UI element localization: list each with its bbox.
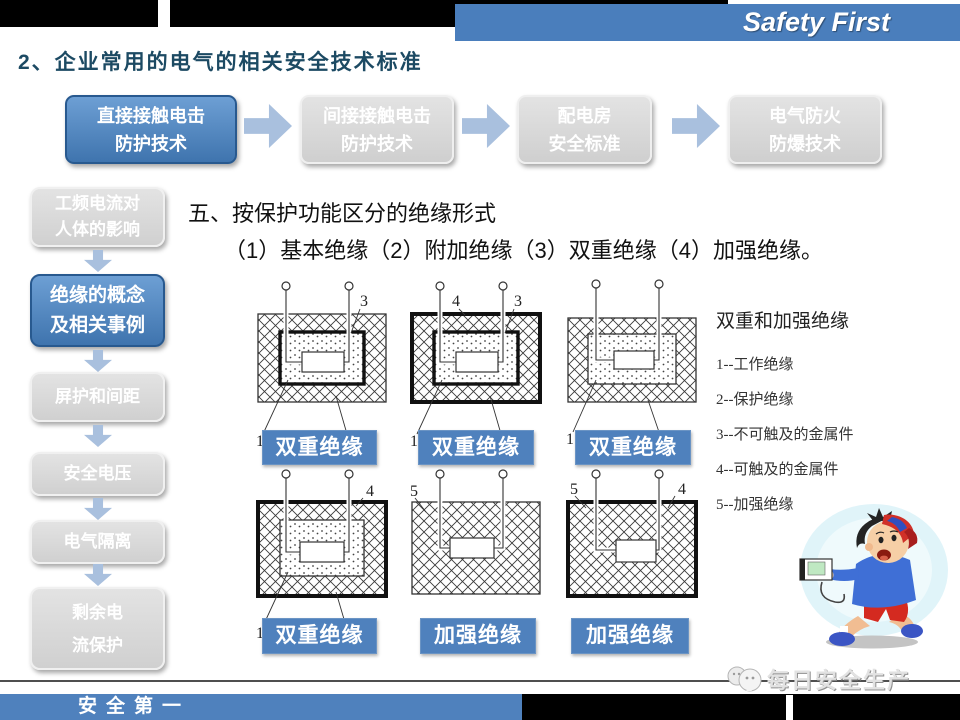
flow-arrow-icon — [462, 104, 510, 148]
flow-step-label-line: 防护技术 — [115, 130, 187, 158]
sidebar-item-safe-voltage: 安全电压 — [30, 452, 165, 496]
callout-number: 5 — [410, 483, 418, 500]
watermark-text: 每日安全生产 — [767, 663, 911, 695]
sidebar-arrow-icon — [84, 425, 112, 447]
flow-step-label-line: 安全标准 — [549, 130, 621, 158]
legend-item: 4--可触及的金属件 — [716, 458, 956, 479]
sidebar-arrow-icon — [84, 564, 112, 586]
watermark-tail — [786, 695, 793, 720]
sidebar-label-line: 剩余电 — [72, 596, 123, 629]
section-subheading: （1）基本绝缘（2）附加绝缘（3）双重绝缘（4）加强绝缘。 — [224, 233, 823, 265]
legend-title: 双重和加强绝缘 — [716, 306, 956, 333]
flow-step-indirect-contact: 间接接触电击 防护技术 — [300, 95, 454, 164]
sidebar-item-electrical-isolation: 电气隔离 — [30, 520, 165, 564]
sidebar-item-current-effect: 工频电流对 人体的影响 — [30, 187, 165, 247]
diagram-caption: 加强绝缘 — [571, 618, 689, 654]
callout-number: 4 — [366, 483, 374, 500]
sidebar-arrow-icon — [84, 498, 112, 520]
callout-number: 3 — [514, 293, 522, 310]
header-brand-banner: Safety First — [455, 4, 960, 41]
flow-step-label-line: 直接接触电击 — [97, 102, 205, 130]
sidebar-item-shielding-spacing: 屏护和间距 — [30, 372, 165, 422]
callout-number: 1 — [566, 431, 574, 448]
sidebar-label-line: 安全电压 — [64, 461, 132, 487]
sidebar-label-line: 绝缘的概念 — [50, 281, 145, 311]
flow-arrow-icon — [672, 104, 720, 148]
flow-step-direct-contact: 直接接触电击 防护技术 — [65, 95, 237, 164]
sidebar-label-line: 屏护和间距 — [55, 384, 140, 410]
diagram-caption: 双重绝缘 — [575, 430, 691, 465]
callout-number: 4 — [678, 481, 686, 498]
callout-number: 1 — [410, 433, 418, 450]
sidebar-item-insulation-concept: 绝缘的概念 及相关事例 — [30, 274, 165, 347]
flow-step-label-line: 间接接触电击 — [323, 102, 431, 130]
sidebar-label-line: 流保护 — [72, 629, 123, 662]
callout-number: 3 — [360, 293, 368, 310]
slide[interactable]: Safety First 2、企业常用的电气的相关安全技术标准 直接接触电击 防… — [0, 0, 960, 720]
flow-step-label-line: 电气防火 — [769, 102, 841, 130]
flow-step-label-line: 配电房 — [558, 102, 612, 130]
sidebar-label-line: 人体的影响 — [55, 217, 140, 243]
callout-number: 5 — [570, 481, 578, 498]
watermark: 每日安全生产 — [726, 663, 911, 695]
chat-bubbles-icon — [726, 666, 762, 693]
flow-step-label-line: 防护技术 — [341, 130, 413, 158]
mascot-illustration — [788, 498, 956, 654]
flow-step-label-line: 防爆技术 — [769, 130, 841, 158]
section-heading: 五、按保护功能区分的绝缘形式 — [188, 196, 496, 228]
sidebar-label-line: 电气隔离 — [64, 529, 132, 555]
legend-item: 3--不可触及的金属件 — [716, 423, 956, 444]
diagram-caption: 双重绝缘 — [262, 430, 377, 465]
diagram-caption: 加强绝缘 — [420, 618, 536, 654]
legend: 双重和加强绝缘 1--工作绝缘 2--保护绝缘 3--不可触及的金属件 4--可… — [716, 306, 956, 528]
sidebar-label-line: 及相关事例 — [50, 311, 145, 341]
sidebar-item-residual-current: 剩余电 流保护 — [30, 587, 165, 670]
diagram-caption: 双重绝缘 — [418, 430, 534, 465]
callout-number: 4 — [452, 293, 460, 310]
header-black-bar-left — [0, 0, 158, 27]
sidebar-arrow-icon — [84, 350, 112, 372]
legend-item: 2--保护绝缘 — [716, 388, 956, 409]
flow-arrow-icon — [244, 104, 292, 148]
diagram-caption: 双重绝缘 — [262, 618, 377, 654]
sidebar-arrow-icon — [84, 250, 112, 272]
flow-step-fire-explosion: 电气防火 防爆技术 — [728, 95, 882, 164]
legend-item: 1--工作绝缘 — [716, 353, 956, 374]
sidebar-label-line: 工频电流对 — [55, 191, 140, 217]
flow-step-distribution-room: 配电房 安全标准 — [517, 95, 652, 164]
footer-black-bar — [522, 694, 960, 720]
page-title: 2、企业常用的电气的相关安全技术标准 — [18, 46, 423, 76]
footer-slogan-bar: 安全第一 — [0, 694, 522, 720]
